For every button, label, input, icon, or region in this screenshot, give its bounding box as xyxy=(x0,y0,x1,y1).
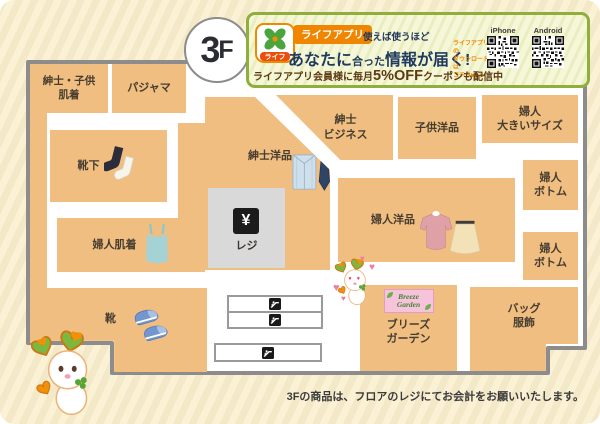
escalator-icon xyxy=(269,314,281,326)
clover-bunny-mascot-large xyxy=(22,330,117,420)
section-label: 婦人 xyxy=(534,171,567,185)
escalator-icon xyxy=(269,298,281,310)
breeze-sign-line: Garden xyxy=(397,301,420,309)
qr-code-android xyxy=(532,36,564,68)
headline-part: あなたに xyxy=(288,52,352,69)
section-womens-large-size: 婦人大きいサイズ xyxy=(482,95,578,143)
escalator-bar xyxy=(214,343,322,362)
section-label: 服飾 xyxy=(508,316,541,330)
section-womens-bottom-lower: 婦人ボトム xyxy=(523,232,578,280)
section-womens-clothing: 婦人洋品 xyxy=(338,178,515,262)
register-area: ¥ レジ xyxy=(208,188,285,268)
leaf-icon xyxy=(386,291,394,299)
leaf-icon xyxy=(424,303,432,311)
store-floor-guide-page: 紳士・子供肌着 パジャマ 靴下 紳士洋品 紳士ビジネス 子供洋品 婦人大きいサイ… xyxy=(0,0,600,424)
section-label: ビジネス xyxy=(324,128,368,142)
shoes-icon xyxy=(127,308,179,350)
section-label: 紳士洋品 xyxy=(248,149,292,163)
section-label: 肌着 xyxy=(43,89,96,103)
section-label: 子供洋品 xyxy=(415,121,459,135)
app-icon-label: ライフ xyxy=(265,53,286,61)
coupon-text: クーポンも配信中 xyxy=(423,72,503,83)
banner-headline: あなたに合った情報が届く! xyxy=(288,46,470,70)
register-label: レジ xyxy=(208,237,285,253)
section-label: 婦人洋品 xyxy=(371,213,415,227)
escalator-bar xyxy=(227,311,323,329)
download-note-line: ライフアプリの xyxy=(453,40,491,56)
yen-icon: ¥ xyxy=(233,208,259,234)
section-womens-underwear: 婦人肌着 xyxy=(57,218,205,272)
qr-android-label: Android xyxy=(530,26,566,35)
section-socks: 靴下 xyxy=(50,130,167,202)
section-label: 紳士・子供 xyxy=(43,75,96,89)
life-app-banner[interactable]: ライフ ライフアプリ 使えば使うほど あなたに合った情報が届く! ライフアプリの… xyxy=(246,12,590,88)
section-pajama: パジャマ xyxy=(112,64,186,113)
section-label: 婦人 xyxy=(534,242,567,256)
heart-icon: ♥ xyxy=(360,254,365,263)
banner-tagline: 使えば使うほど xyxy=(363,29,430,43)
escalator-icon xyxy=(262,347,274,359)
section-label: 大きいサイズ xyxy=(497,119,563,133)
section-label: 靴下 xyxy=(78,159,100,173)
qr-code-iphone xyxy=(487,36,519,68)
section-label: バッグ xyxy=(508,302,541,316)
coupon-line: ライフアプリ会員様に毎月5%OFFクーポンも配信中 xyxy=(253,68,503,84)
blouse-skirt-icon xyxy=(420,209,482,259)
footer-note: 3Fの商品は、フロアのレジにてお会計をお願いいたします。 xyxy=(287,388,584,404)
section-label: 婦人肌着 xyxy=(93,238,137,252)
section-label: 婦人 xyxy=(497,105,563,119)
section-label: ガーデン xyxy=(387,332,431,346)
section-label: 紳士 xyxy=(324,113,368,127)
heart-icon: ♥ xyxy=(333,282,340,294)
heart-icon: ♥ xyxy=(341,294,346,303)
coupon-highlight: 5%OFF xyxy=(373,68,423,84)
section-womens-bottom-upper: 婦人ボトム xyxy=(523,160,578,210)
yen-symbol: ¥ xyxy=(242,212,251,230)
app-name: ライフアプリ xyxy=(301,29,364,41)
section-kids-clothing: 子供洋品 xyxy=(398,97,476,159)
breeze-garden-sign: Breeze Garden xyxy=(384,289,434,313)
qr-iphone-label: iPhone xyxy=(487,26,519,35)
headline-part: 合った xyxy=(352,56,385,68)
floor-number: 3 xyxy=(200,29,218,71)
socks-icon xyxy=(104,145,140,191)
floor-number-badge: 3F xyxy=(184,17,250,83)
section-mens-kids-underwear: 紳士・子供肌着 xyxy=(30,64,108,113)
section-label: 靴 xyxy=(105,312,116,326)
heart-icon: ♥ xyxy=(369,262,375,273)
app-name-badge: ライフアプリ xyxy=(293,25,372,44)
floor-suffix: F xyxy=(218,36,233,65)
section-label: パジャマ xyxy=(127,81,170,95)
section-label: ボトム xyxy=(534,185,567,199)
section-label: ボトム xyxy=(534,256,567,270)
section-label: ブリーズ xyxy=(387,318,431,332)
coupon-text: ライフアプリ会員様に毎月 xyxy=(253,72,373,83)
camisole-icon xyxy=(144,224,170,266)
